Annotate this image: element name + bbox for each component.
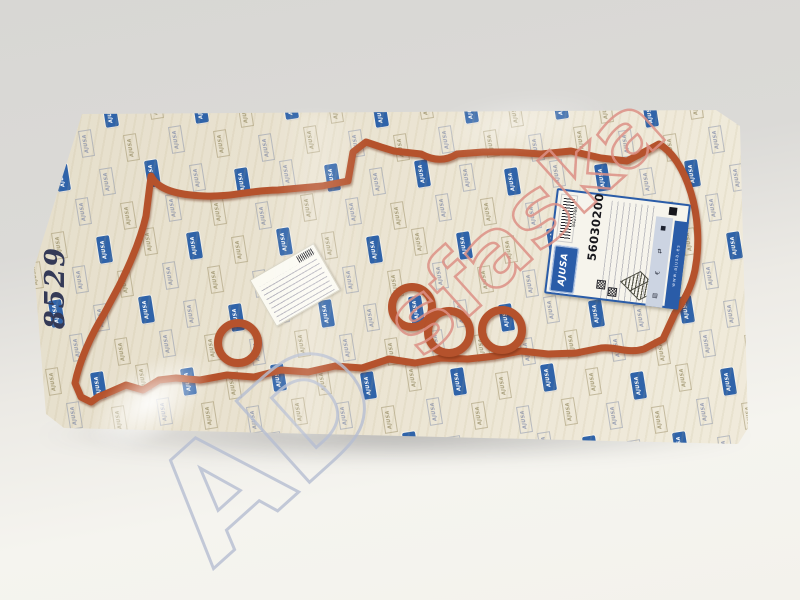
product-photo: AJUSAAJUSAAJUSAAJUSAAJUSAAJUSAAJUSAAJUSA… [0, 0, 800, 600]
watermark-gray-text: AD [121, 306, 416, 596]
watermark-red-text: sfaska [364, 72, 684, 376]
watermark-overlay: AD sfaska [0, 0, 800, 600]
